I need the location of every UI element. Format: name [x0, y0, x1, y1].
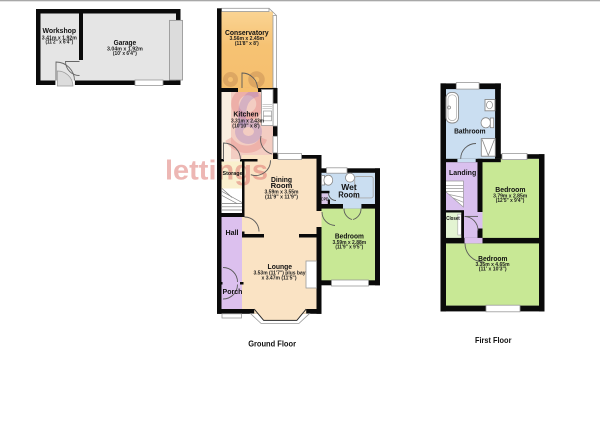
svg-text:(11'9" x 9'5"): (11'9" x 9'5") [335, 245, 363, 251]
svg-text:Kitchen: Kitchen [233, 110, 258, 119]
svg-text:(12'5" x 9'4"): (12'5" x 9'4") [496, 198, 525, 204]
svg-text:Porch: Porch [223, 287, 243, 296]
svg-text:CPD: CPD [321, 196, 329, 201]
svg-text:First Floor: First Floor [475, 336, 512, 345]
svg-text:(11' x 10'3"): (11' x 10'3") [479, 267, 507, 273]
svg-text:Bedroom: Bedroom [335, 231, 364, 240]
svg-text:(11'8" x 8'): (11'8" x 8') [235, 41, 259, 47]
svg-text:Bathroom: Bathroom [454, 127, 485, 136]
svg-text:x 3.47m (11'5"): x 3.47m (11'5") [262, 276, 297, 282]
svg-text:(11'2" x 6'4"): (11'2" x 6'4") [45, 40, 73, 46]
svg-text:Hall: Hall [225, 228, 238, 237]
svg-text:Room: Room [338, 191, 360, 200]
svg-text:(10' x 6'4"): (10' x 6'4") [113, 51, 137, 57]
svg-text:(11'9" x 11'9"): (11'9" x 11'9") [265, 195, 298, 201]
svg-text:Storage: Storage [223, 171, 243, 177]
svg-text:Landing: Landing [449, 168, 476, 177]
svg-text:(10'10" x 8'): (10'10" x 8') [232, 124, 260, 130]
svg-text:Workshop: Workshop [43, 26, 77, 35]
svg-text:Closet: Closet [446, 216, 460, 222]
svg-text:Ground Floor: Ground Floor [248, 340, 297, 349]
